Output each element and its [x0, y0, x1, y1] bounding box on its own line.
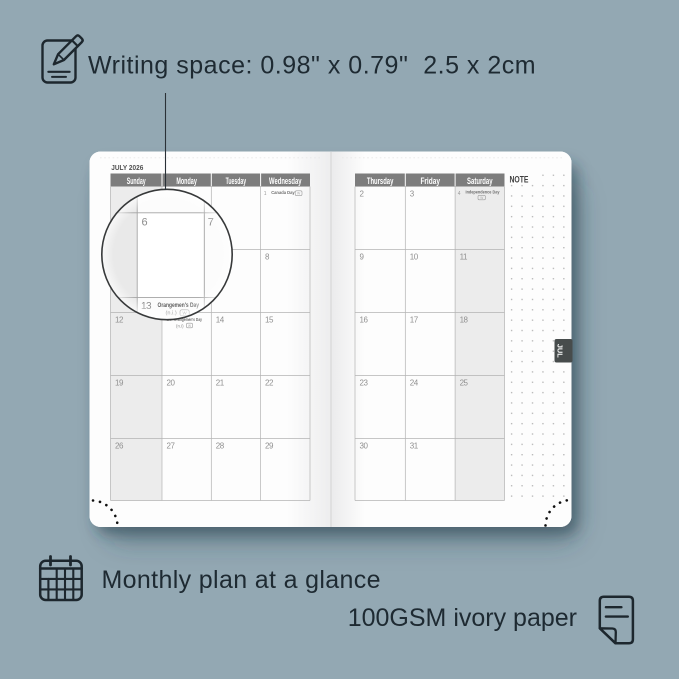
svg-text:W: W	[480, 196, 483, 200]
svg-text:NOTE: NOTE	[510, 175, 529, 185]
svg-text:20: 20	[167, 379, 176, 388]
svg-text:100GSM ivory paper: 100GSM ivory paper	[348, 604, 577, 632]
svg-text:4: 4	[458, 191, 461, 197]
svg-text:23: 23	[360, 379, 369, 388]
svg-text:17: 17	[410, 316, 419, 325]
svg-text:25: 25	[460, 379, 469, 388]
svg-text:19: 19	[115, 379, 124, 388]
svg-text:JUL: JUL	[555, 344, 564, 358]
svg-text:24: 24	[410, 379, 419, 388]
svg-text:22: 22	[265, 379, 274, 388]
svg-text:W: W	[188, 324, 191, 328]
svg-text:10: 10	[410, 253, 419, 262]
svg-text:Canada Day: Canada Day	[271, 190, 295, 196]
svg-text:14: 14	[216, 316, 225, 325]
svg-text:JULY 2026: JULY 2026	[111, 163, 143, 172]
svg-text:1: 1	[264, 191, 267, 197]
svg-text:21: 21	[216, 379, 225, 388]
svg-text:Writing space: 0.98" x 0.79": Writing space: 0.98" x 0.79" 2.5 x 2cm	[88, 52, 536, 80]
svg-text:27: 27	[167, 442, 176, 451]
svg-text:Friday: Friday	[420, 176, 440, 186]
svg-text:Thursday: Thursday	[367, 176, 394, 186]
svg-text:26: 26	[115, 442, 124, 451]
svg-text:11: 11	[460, 253, 468, 262]
svg-text:Independence Day: Independence Day	[466, 190, 500, 196]
svg-text:18: 18	[460, 316, 469, 325]
svg-text:Saturday: Saturday	[467, 176, 493, 186]
svg-text:31: 31	[410, 442, 419, 451]
svg-text:28: 28	[216, 442, 225, 451]
svg-text:29: 29	[265, 442, 274, 451]
svg-text:Tuesday: Tuesday	[226, 176, 247, 186]
svg-text:15: 15	[265, 316, 274, 325]
svg-text:Wednesday: Wednesday	[269, 176, 302, 186]
svg-text:12: 12	[115, 316, 124, 325]
svg-text:Monthly plan at a glance: Monthly plan at a glance	[102, 566, 381, 594]
svg-text:Sunday: Sunday	[127, 176, 146, 186]
svg-text:(n.i): (n.i)	[176, 324, 184, 329]
svg-text:30: 30	[360, 442, 369, 451]
svg-text:16: 16	[360, 316, 369, 325]
svg-text:Monday: Monday	[176, 176, 197, 186]
